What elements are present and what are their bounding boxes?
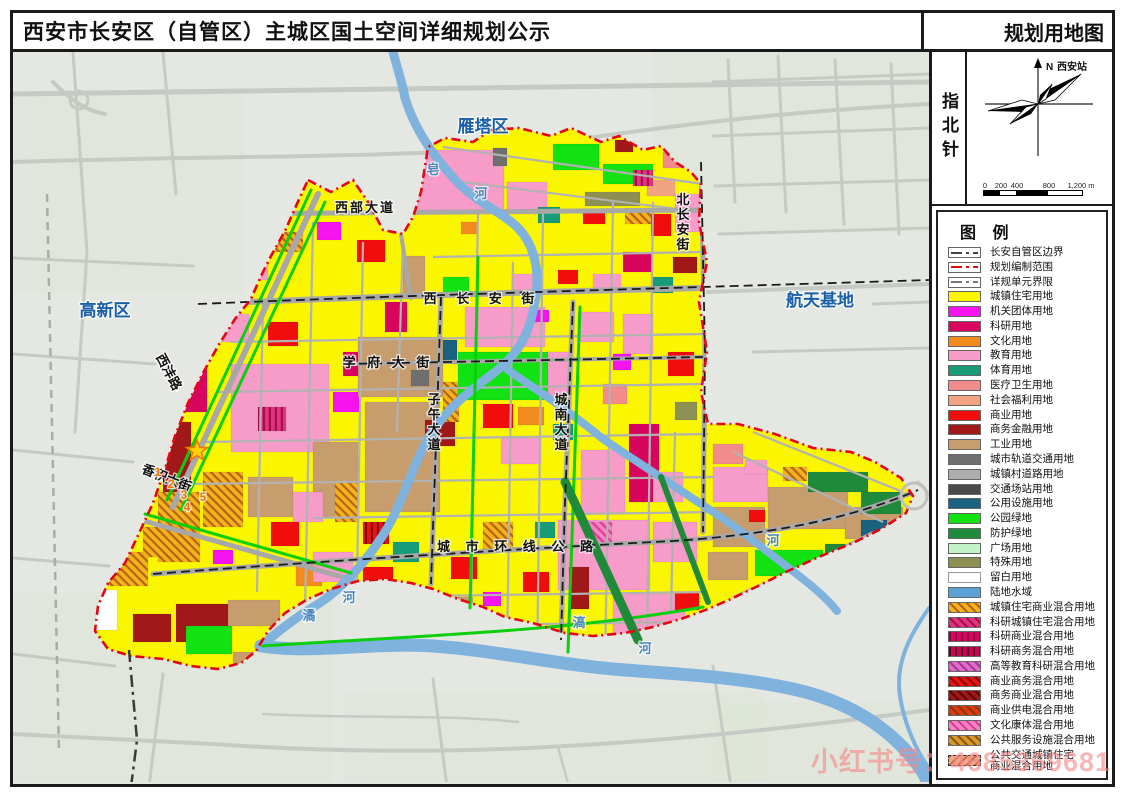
legend-item: 城镇住宅用地 xyxy=(948,291,1102,302)
land-use-block xyxy=(411,370,429,386)
land-use-block xyxy=(558,270,578,284)
legend-item: 陆地水域 xyxy=(948,587,1102,598)
legend-item: 机关团体用地 xyxy=(948,306,1102,317)
street-label: 西 长 安 街 xyxy=(424,291,543,306)
street-label: 北 xyxy=(676,192,689,207)
land-use-block xyxy=(483,404,513,428)
land-use-block xyxy=(335,482,359,522)
legend-item: 高等教育科研混合用地 xyxy=(948,661,1102,672)
legend-swatch xyxy=(948,617,981,628)
route-number-label: 4 xyxy=(184,500,191,514)
legend-title: 图 例 xyxy=(960,219,1102,243)
scale-bar-segments xyxy=(983,190,1083,196)
legend-item: 公共交通城镇住宅 商业混合用地 xyxy=(948,750,1102,772)
legend-item-label: 交通场站用地 xyxy=(990,484,1053,495)
legend-item-label: 商业商务混合用地 xyxy=(990,676,1074,687)
land-use-block xyxy=(633,170,653,186)
compass-box: 指北针 xyxy=(932,52,1112,206)
legend-item: 城市轨道交通用地 xyxy=(948,454,1102,465)
land-use-block xyxy=(268,322,298,346)
land-use-block xyxy=(203,472,243,527)
legend-list: 长安自管区边界规划编制范围详规单元界限城镇住宅用地机关团体用地科研用地文化用地教… xyxy=(948,247,1102,772)
legend-swatch xyxy=(948,557,981,568)
legend-item-label: 文化用地 xyxy=(990,336,1032,347)
land-use-block xyxy=(523,572,549,592)
legend-swatch xyxy=(948,365,981,376)
legend-swatch xyxy=(948,336,981,347)
river-label: 河 xyxy=(766,533,779,548)
legend-swatch xyxy=(948,306,981,317)
legend-swatch xyxy=(948,380,981,391)
compass-station-label: 西安站 xyxy=(1057,60,1087,73)
street-label: 道 xyxy=(427,437,440,452)
river-label: 河 xyxy=(638,641,651,656)
legend-item-label: 医疗卫生用地 xyxy=(990,380,1053,391)
legend-item: 体育用地 xyxy=(948,365,1102,376)
compass-area: N 西安站 0 200 400 800 1,200 m xyxy=(967,52,1112,204)
side-panel: 指北针 xyxy=(929,52,1112,784)
legend-swatch xyxy=(948,755,981,766)
legend-item: 科研用地 xyxy=(948,321,1102,332)
legend-item: 商业商务混合用地 xyxy=(948,676,1102,687)
land-use-block xyxy=(228,600,280,626)
legend-item: 教育用地 xyxy=(948,350,1102,361)
legend-swatch xyxy=(948,291,981,302)
land-use-block xyxy=(613,354,631,370)
legend-item: 城镇住宅商业混合用地 xyxy=(948,602,1102,613)
legend-item: 广场用地 xyxy=(948,543,1102,554)
land-use-block xyxy=(461,222,477,234)
legend-item-label: 体育用地 xyxy=(990,365,1032,376)
legend-item: 公园绿地 xyxy=(948,513,1102,524)
street-label: 城 xyxy=(554,392,567,407)
legend-item: 公用设施用地 xyxy=(948,498,1102,509)
legend-item-label: 公园绿地 xyxy=(990,513,1032,524)
legend-swatch xyxy=(948,350,981,361)
land-use-block xyxy=(451,557,477,579)
scale-tick-0: 0 xyxy=(983,181,987,190)
land-use-block xyxy=(333,392,359,412)
legend-swatch xyxy=(948,321,981,332)
land-use-block xyxy=(708,552,748,580)
legend-swatch xyxy=(948,410,981,421)
street-label: 学 府 大 街 xyxy=(343,355,434,370)
legend-swatch xyxy=(948,395,981,406)
legend-item-label: 公共交通城镇住宅 商业混合用地 xyxy=(990,750,1074,772)
header: 西安市长安区（自管区）主城区国土空间详细规划公示 规划用地图 xyxy=(13,13,1112,52)
legend-swatch xyxy=(948,661,981,672)
street-label: 安 xyxy=(676,222,689,237)
street-label: 城 市 环 线 公 路 xyxy=(437,539,599,554)
land-use-block xyxy=(385,302,407,332)
page-title: 西安市长安区（自管区）主城区国土空间详细规划公示 xyxy=(13,13,921,49)
legend-item: 防护绿地 xyxy=(948,528,1102,539)
legend-item-label: 高等教育科研混合用地 xyxy=(990,661,1095,672)
district-label: 航天基地 xyxy=(786,290,854,310)
land-use-block xyxy=(749,510,765,522)
body: 雁塔区高新区航天基地西部大道西 长 安 街学 府 大 街城 市 环 线 公 路北… xyxy=(13,52,1112,784)
legend-swatch xyxy=(948,247,981,258)
legend-item-label: 城市轨道交通用地 xyxy=(990,454,1074,465)
legend-item-label: 科研商务混合用地 xyxy=(990,646,1074,657)
land-use-block xyxy=(623,252,653,272)
legend-swatch xyxy=(948,454,981,465)
legend-item-label: 商业用地 xyxy=(990,410,1032,421)
legend-swatch xyxy=(948,646,981,657)
land-use-block xyxy=(651,214,671,236)
planning-map[interactable]: 雁塔区高新区航天基地西部大道西 长 安 街学 府 大 街城 市 环 线 公 路北… xyxy=(13,52,929,784)
legend-swatch xyxy=(948,277,981,288)
street-label: 长 xyxy=(676,207,690,222)
legend-swatch xyxy=(948,602,981,613)
legend-swatch xyxy=(948,587,981,598)
legend-item-label: 机关团体用地 xyxy=(990,306,1053,317)
river-label: 潏 xyxy=(302,608,315,623)
legend-item-label: 科研城镇住宅混合用地 xyxy=(990,617,1095,628)
legend-swatch xyxy=(948,513,981,524)
legend-swatch xyxy=(948,528,981,539)
district-label: 雁塔区 xyxy=(458,116,509,136)
legend-item: 文化用地 xyxy=(948,336,1102,347)
land-use-block xyxy=(271,522,299,546)
legend-item: 特殊用地 xyxy=(948,557,1102,568)
compass-north-label: N xyxy=(1046,62,1053,73)
legend-swatch xyxy=(948,439,981,450)
legend-swatch xyxy=(948,735,981,746)
scale-bar: 0 200 400 800 1,200 m xyxy=(983,181,1103,199)
river-label: 皂 xyxy=(426,162,439,177)
legend-item-label: 公用设施用地 xyxy=(990,498,1053,509)
street-label: 西部大道 xyxy=(335,200,395,215)
legend-swatch xyxy=(948,572,981,583)
scale-ticks: 0 200 400 800 1,200 m xyxy=(983,181,1103,190)
sheet-frame: 西安市长安区（自管区）主城区国土空间详细规划公示 规划用地图 雁塔区高新区航天基… xyxy=(10,10,1115,787)
legend-item-label: 公共服务设施混合用地 xyxy=(990,735,1095,746)
land-use-block xyxy=(675,402,697,420)
land-use-block xyxy=(357,240,385,262)
land-use-block xyxy=(317,222,341,240)
legend-item-label: 商业供电混合用地 xyxy=(990,705,1074,716)
legend-swatch xyxy=(948,690,981,701)
legend-item: 规划编制范围 xyxy=(948,262,1102,273)
legend-swatch xyxy=(948,484,981,495)
legend-item-label: 社会福利用地 xyxy=(990,395,1053,406)
legend-item-label: 城镇住宅商业混合用地 xyxy=(990,602,1095,613)
legend-item: 商务金融用地 xyxy=(948,424,1102,435)
legend-item-label: 商务商业混合用地 xyxy=(990,690,1074,701)
street-label: 道 xyxy=(554,437,567,452)
legend-item-label: 规划编制范围 xyxy=(990,262,1053,273)
legend-item-label: 广场用地 xyxy=(990,543,1032,554)
river-label: 河 xyxy=(342,590,355,605)
legend-swatch xyxy=(948,543,981,554)
land-use-block xyxy=(578,312,614,342)
legend-item-label: 文化康体混合用地 xyxy=(990,720,1074,731)
legend-item: 科研城镇住宅混合用地 xyxy=(948,617,1102,628)
legend-item-label: 科研用地 xyxy=(990,321,1032,332)
legend-swatch xyxy=(948,676,981,687)
legend-item: 城镇村道路用地 xyxy=(948,469,1102,480)
legend-item-label: 城镇村道路用地 xyxy=(990,469,1064,480)
district-label: 高新区 xyxy=(80,300,131,320)
legend-item-label: 科研商业混合用地 xyxy=(990,631,1074,642)
land-use-block xyxy=(493,148,507,166)
legend-swatch xyxy=(948,631,981,642)
legend-item-label: 教育用地 xyxy=(990,350,1032,361)
land-use-block xyxy=(583,212,605,224)
land-use-block xyxy=(603,384,627,404)
legend-item-label: 留白用地 xyxy=(990,572,1032,583)
legend-item-label: 特殊用地 xyxy=(990,557,1032,568)
legend-item: 交通场站用地 xyxy=(948,484,1102,495)
scale-tick-200: 200 xyxy=(995,181,1008,190)
legend-item-label: 商务金融用地 xyxy=(990,424,1053,435)
legend-item-label: 详规单元界限 xyxy=(990,277,1053,288)
street-label: 南 xyxy=(554,407,567,422)
street-label: 街 xyxy=(675,237,689,252)
sheet-title: 规划用地图 xyxy=(921,13,1112,49)
legend-item: 科研商业混合用地 xyxy=(948,631,1102,642)
legend-item: 留白用地 xyxy=(948,572,1102,583)
legend-item: 文化康体混合用地 xyxy=(948,720,1102,731)
river-label: 河 xyxy=(474,186,487,201)
legend-item: 商务商业混合用地 xyxy=(948,690,1102,701)
legend-swatch xyxy=(948,720,981,731)
legend-item: 公共服务设施混合用地 xyxy=(948,735,1102,746)
legend-swatch xyxy=(948,498,981,509)
legend-item-label: 城镇住宅用地 xyxy=(990,291,1053,302)
land-use-block xyxy=(213,550,233,564)
legend-item: 长安自管区边界 xyxy=(948,247,1102,258)
street-label: 午 xyxy=(427,407,440,422)
legend: 图 例 长安自管区边界规划编制范围详规单元界限城镇住宅用地机关团体用地科研用地文… xyxy=(936,210,1108,780)
compass-rose-icon: N 西安站 xyxy=(967,52,1109,160)
legend-swatch xyxy=(948,705,981,716)
legend-item: 商业用地 xyxy=(948,410,1102,421)
land-use-block xyxy=(581,450,625,514)
land-use-block xyxy=(783,467,807,481)
legend-item: 科研商务混合用地 xyxy=(948,646,1102,657)
legend-item: 详规单元界限 xyxy=(948,277,1102,288)
route-number-label: 2 xyxy=(168,477,175,491)
river-label: 滈 xyxy=(572,615,585,630)
legend-item: 工业用地 xyxy=(948,439,1102,450)
street-label: 子 xyxy=(427,392,440,407)
legend-item-label: 防护绿地 xyxy=(990,528,1032,539)
legend-item: 医疗卫生用地 xyxy=(948,380,1102,391)
land-use-block xyxy=(133,614,171,642)
land-use-block xyxy=(258,407,286,431)
legend-swatch xyxy=(948,424,981,435)
map-canvas[interactable]: 雁塔区高新区航天基地西部大道西 长 安 街学 府 大 街城 市 环 线 公 路北… xyxy=(13,52,929,782)
land-use-block xyxy=(186,626,232,654)
route-number-label: 5 xyxy=(200,490,207,504)
scale-tick-800: 800 xyxy=(1043,181,1056,190)
street-label: 大 xyxy=(427,422,440,437)
legend-item: 社会福利用地 xyxy=(948,395,1102,406)
legend-item: 商业供电混合用地 xyxy=(948,705,1102,716)
scale-tick-1200: 1,200 m xyxy=(1067,181,1094,190)
land-use-block xyxy=(673,257,697,273)
land-use-block xyxy=(501,438,541,464)
legend-swatch xyxy=(948,262,981,273)
legend-item-label: 工业用地 xyxy=(990,439,1032,450)
legend-item-label: 长安自管区边界 xyxy=(990,247,1064,258)
scale-tick-400: 400 xyxy=(1011,181,1024,190)
compass-panel-label: 指北针 xyxy=(932,52,967,204)
route-number-label: 1 xyxy=(155,465,162,479)
street-label: 大 xyxy=(554,422,567,437)
legend-item-label: 陆地水域 xyxy=(990,587,1032,598)
legend-swatch xyxy=(948,469,981,480)
